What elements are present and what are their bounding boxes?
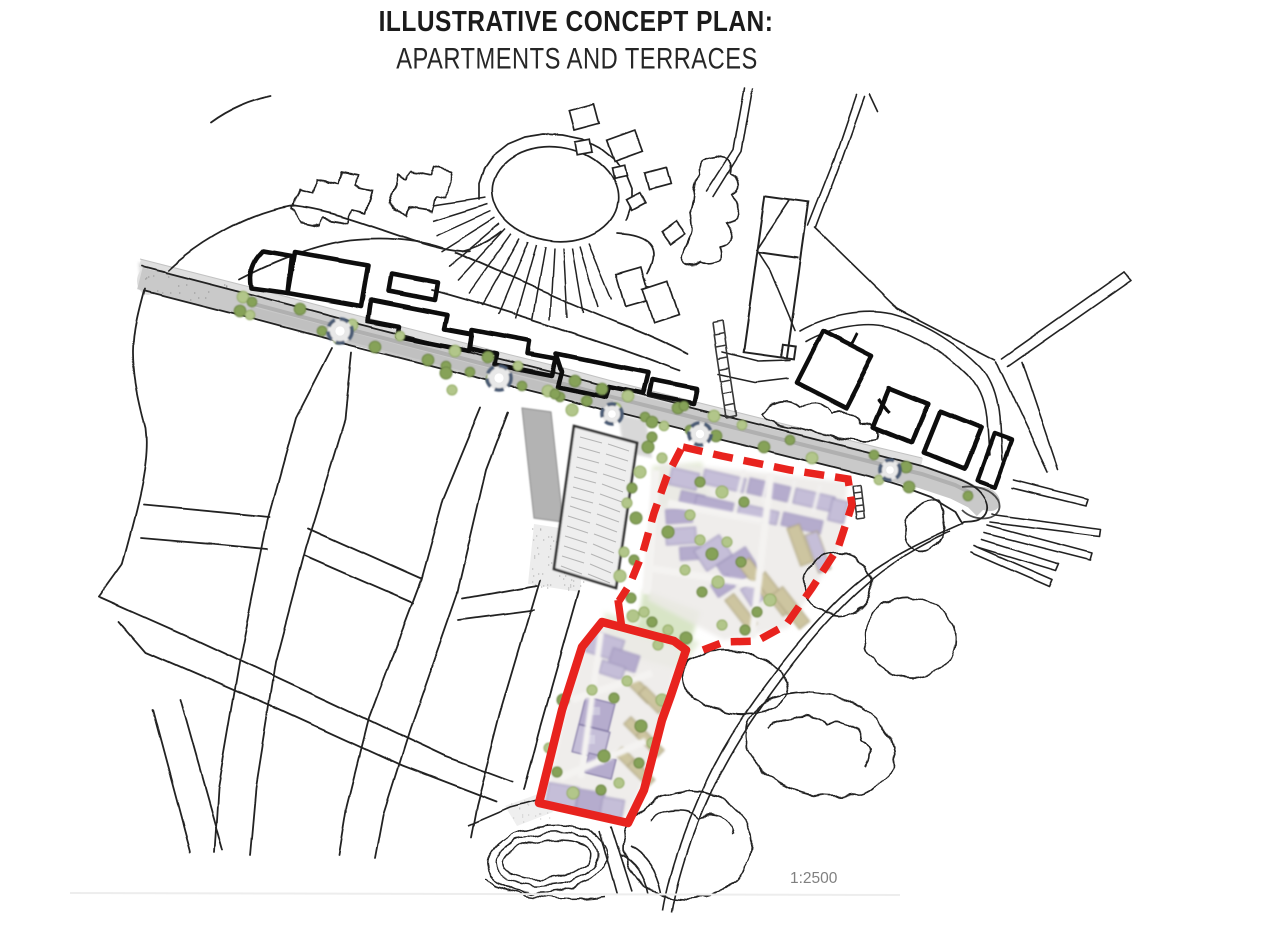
svg-text:ILLUSTRATIVE CONCEPT PLAN:: ILLUSTRATIVE CONCEPT PLAN: <box>379 5 774 37</box>
svg-text:1:2500: 1:2500 <box>790 870 838 887</box>
svg-text:APARTMENTS AND TERRACES: APARTMENTS AND TERRACES <box>396 42 758 75</box>
